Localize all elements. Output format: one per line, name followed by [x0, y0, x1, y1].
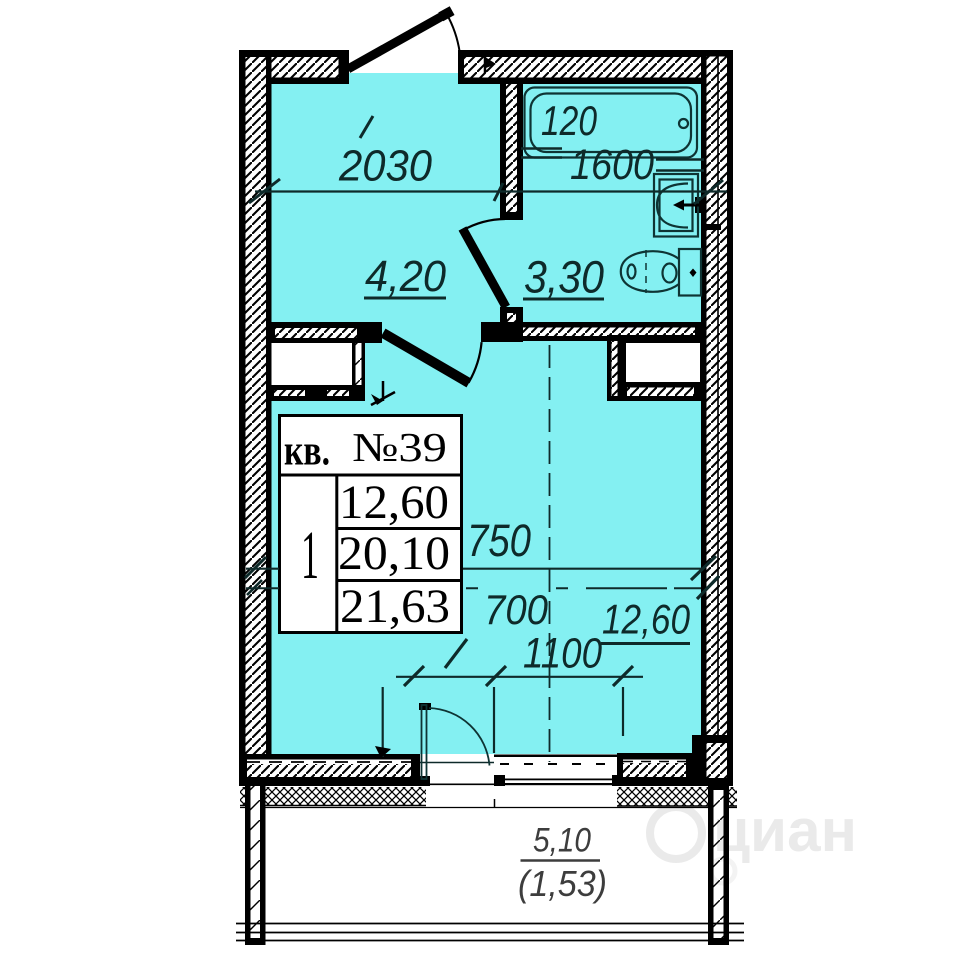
- svg-text:3,30: 3,30: [524, 252, 604, 303]
- svg-text:21,63: 21,63: [340, 580, 450, 633]
- svg-text:4,20: 4,20: [365, 252, 446, 301]
- svg-text:кв.: кв.: [284, 428, 330, 475]
- svg-text:№39: №39: [352, 424, 447, 470]
- svg-text:1100: 1100: [523, 630, 602, 678]
- svg-text:750: 750: [467, 515, 531, 566]
- svg-text:700: 700: [484, 586, 549, 633]
- svg-text:12,60: 12,60: [602, 596, 691, 643]
- svg-text:циан: циан: [713, 797, 857, 864]
- svg-text:120: 120: [541, 97, 598, 144]
- svg-text:1: 1: [301, 517, 319, 593]
- svg-text:(1,53): (1,53): [518, 863, 607, 904]
- svg-text:2030: 2030: [338, 142, 432, 191]
- svg-text:12,60: 12,60: [339, 476, 449, 529]
- svg-text:1600: 1600: [570, 141, 654, 189]
- svg-text:20,10: 20,10: [338, 527, 450, 580]
- svg-text:5,10: 5,10: [533, 822, 591, 860]
